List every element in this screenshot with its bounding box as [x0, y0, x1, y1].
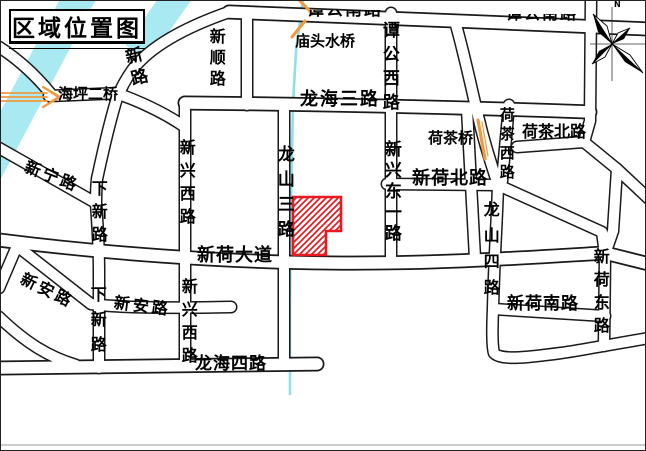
- title-underline: [9, 43, 145, 49]
- location-map: 新路 海坪二桥 新顺路 庙头水桥 谭公南路 谭公南路 谭公西路 龙海三路 荷茶桥…: [0, 0, 646, 451]
- site-parcel: [293, 197, 341, 255]
- road-label-tangong-nanlu-east: 谭公南路: [506, 14, 592, 27]
- road-label-tangong-nanlu-west: 谭公南路: [307, 10, 397, 23]
- page-title: 区域位置图: [9, 9, 145, 43]
- road-network: [1, 1, 646, 451]
- compass-rose: [590, 7, 646, 81]
